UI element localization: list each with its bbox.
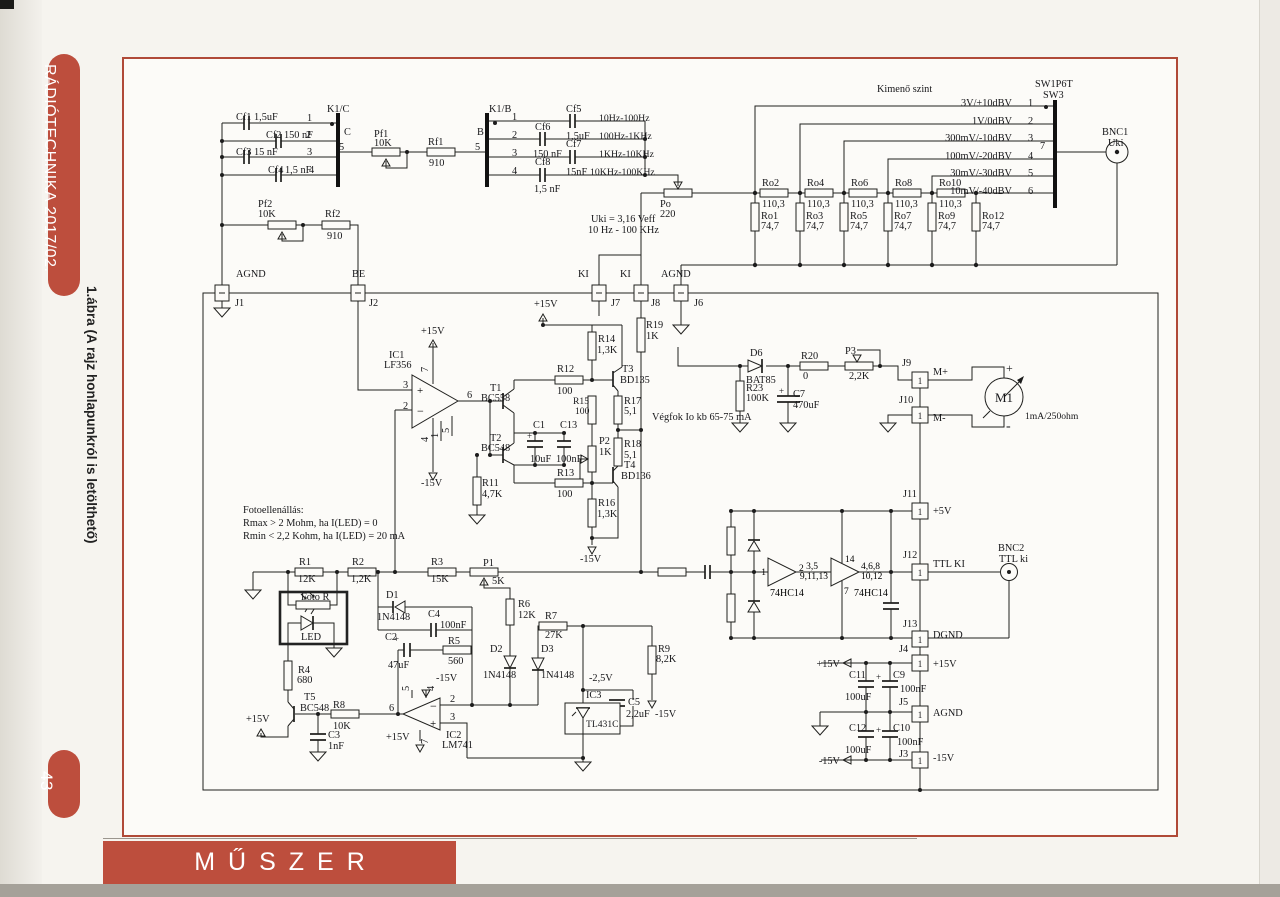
t4-label: T4 xyxy=(624,460,635,471)
section-title: MŰSZER xyxy=(181,848,378,877)
c11-label: C11 xyxy=(849,670,866,681)
pf1-v-label: 10K xyxy=(374,138,392,149)
r13-label: R13 xyxy=(557,468,574,479)
cf2-p-label: 2 xyxy=(306,130,311,141)
ic1-m15-label: -15V xyxy=(421,478,443,489)
cf1-label: Cf1 xyxy=(236,112,251,123)
ro3-v-label: 74,7 xyxy=(806,221,824,232)
d1-v-label: 1N4148 xyxy=(377,612,410,623)
j7-label: J7 xyxy=(611,298,620,309)
c1-label: C1 xyxy=(533,420,545,431)
svg-text:1: 1 xyxy=(761,568,766,578)
cf2-label: Cf2 xyxy=(266,130,281,141)
c11-v-label: 100uF xyxy=(845,692,872,703)
p1-label: P1 xyxy=(483,558,494,569)
switch-k1b-bar xyxy=(485,113,489,187)
c12-label: C12 xyxy=(849,723,866,734)
r6-v-label: 12K xyxy=(518,610,536,621)
lvl2-p-label: 2 xyxy=(1028,116,1033,127)
jsq9-label: 1 xyxy=(918,376,923,386)
ro12-v-label: 74,7 xyxy=(982,221,1000,232)
r13-v-label: 100 xyxy=(557,489,572,500)
d1-label: D1 xyxy=(386,590,399,601)
ic1-p2-label: 2 xyxy=(403,401,408,412)
bnc2-v-label: TTL ki xyxy=(999,554,1028,565)
r11-v-label: 4,7K xyxy=(482,489,503,500)
po-v-label: 220 xyxy=(660,209,675,220)
ic2-p4-label: 4 xyxy=(426,686,437,691)
j10-v-label: M- xyxy=(933,413,946,424)
r12-v-label: 100 xyxy=(557,386,572,397)
cf1-p-label: 1 xyxy=(307,113,312,124)
t5-label: T5 xyxy=(304,692,315,703)
c10-v-label: 100nF xyxy=(897,737,924,748)
rf1-v-label: 910 xyxy=(429,158,444,169)
be-label: BE xyxy=(352,269,365,280)
c5-v-label: 2,2uF xyxy=(626,709,650,720)
fr1-label: 10Hz-100Hz xyxy=(599,113,650,124)
c4-v-label: 100nF xyxy=(440,620,467,631)
r11-label: R11 xyxy=(482,478,499,489)
cf8-label: Cf8 xyxy=(535,157,550,168)
r20-v-label: 0 xyxy=(803,371,808,382)
c3-label: C3 xyxy=(328,730,340,741)
j9-v-label: M+ xyxy=(933,367,948,378)
m1-plus-label: + xyxy=(1006,361,1013,375)
cf4-v-label: 1,5 nF xyxy=(285,165,312,176)
j13-v-label: DGND xyxy=(933,630,963,641)
c5-m15-label: -15V xyxy=(655,709,677,720)
d2-v-label: 1N4148 xyxy=(483,670,516,681)
j8-label: J8 xyxy=(651,298,660,309)
r7-label: R7 xyxy=(545,611,557,622)
svg-text:14: 14 xyxy=(845,555,855,565)
jsq11-label: 1 xyxy=(918,507,923,517)
fr4-label: 10KHz-100KHz xyxy=(590,167,655,178)
lvl1-label: 3V/+10dBV xyxy=(961,98,1013,109)
bnc2-label: BNC2 xyxy=(998,543,1024,554)
lvl3-label: 300mV/-10dBV xyxy=(945,133,1012,144)
c13-v-label: 100nF xyxy=(556,454,583,465)
sw3-label: SW3 xyxy=(1043,90,1064,101)
r18-label: R18 xyxy=(624,439,641,450)
r14-v-label: 1,3K xyxy=(597,345,618,356)
k1b-p1-label: 1 xyxy=(512,112,517,123)
c10-label: C10 xyxy=(893,723,910,734)
r5-label: R5 xyxy=(448,636,460,647)
r6-label: R6 xyxy=(518,599,530,610)
ic1-v-label: LF356 xyxy=(384,360,411,371)
d3-v-label: 1N4148 xyxy=(541,670,574,681)
ic2-p15-label: +15V xyxy=(386,732,410,743)
j5-v-label: AGND xyxy=(933,708,963,719)
c1-p-label: + xyxy=(527,431,532,441)
ic2-p2-label: 2 xyxy=(450,694,455,705)
lvl2-label: 1V/0dBV xyxy=(972,116,1013,127)
t1-v-label: BC558 xyxy=(481,393,510,404)
m15-out-label: -15V xyxy=(580,554,602,565)
r16-label: R16 xyxy=(598,498,615,509)
r8-label: R8 xyxy=(333,700,345,711)
kimeno-szint-label: Kimenő szint xyxy=(877,84,932,95)
r19-label: R19 xyxy=(646,320,663,331)
ic2-p3-label: 3 xyxy=(450,712,455,723)
svg-text:10,12: 10,12 xyxy=(861,572,883,582)
cf3-v-label: 15 nF xyxy=(254,147,278,158)
jsq5-label: 1 xyxy=(918,710,923,720)
c9-label: C9 xyxy=(893,670,905,681)
svg-text:−: − xyxy=(417,404,424,418)
ro8-v-label: 110,3 xyxy=(895,199,918,210)
j11-v-label: +5V xyxy=(933,506,952,517)
led-symbol xyxy=(301,616,313,630)
r1-label: R1 xyxy=(299,557,311,568)
ro6-v-label: 110,3 xyxy=(851,199,874,210)
svg-text:3,5: 3,5 xyxy=(806,562,818,572)
svg-text:−: − xyxy=(430,699,437,713)
fr2-label: 100Hz-1KHz xyxy=(599,131,652,142)
lvl1-p-label: 1 xyxy=(1028,98,1033,109)
p2-label: P2 xyxy=(599,436,610,447)
sw3-p7-label: 7 xyxy=(1040,141,1045,152)
c2-p-label: + xyxy=(394,634,399,644)
k1c-c-label: C xyxy=(344,127,351,138)
cf8-v-label: 15nF xyxy=(566,167,587,178)
ki-j8-label: KI xyxy=(620,269,631,280)
ro2-v-label: 110,3 xyxy=(762,199,785,210)
note3-label: Rmin < 2,2 Kohm, ha I(LED) = 20 mA xyxy=(243,531,406,542)
note2-label: Rmax > 2 Mohm, ha I(LED) = 0 xyxy=(243,518,378,529)
section-banner: MŰSZER xyxy=(103,841,456,884)
j6-label: J6 xyxy=(694,298,703,309)
svg-text:9,11,13: 9,11,13 xyxy=(800,572,828,582)
p15-l-label: +15V xyxy=(816,659,840,670)
k1b-p3-label: 3 xyxy=(512,148,517,159)
cf5-label: Cf5 xyxy=(566,104,581,115)
r3-label: R3 xyxy=(431,557,443,568)
bnc1-label: BNC1 xyxy=(1102,127,1128,138)
amplifier-triangles: + − − + 1 2 3,5 9,11,13 4,6,8 10,12 14 7… xyxy=(403,375,888,730)
k1b-p2-label: 2 xyxy=(512,130,517,141)
ic3-v-label: TL431C xyxy=(586,719,619,730)
switch-sw3-bar xyxy=(1053,100,1057,208)
cf7-label: Cf7 xyxy=(566,139,581,150)
ic1-p1-label: 1 xyxy=(430,433,441,438)
t3-v-label: BD135 xyxy=(620,375,650,386)
m25-label: -2,5V xyxy=(589,673,613,684)
j12-label: J12 xyxy=(903,550,917,561)
jsq13-label: 1 xyxy=(918,635,923,645)
t3-label: T3 xyxy=(622,364,633,375)
r1-v-label: 12K xyxy=(298,574,316,585)
r2-v-label: 1,2K xyxy=(351,574,372,585)
j11-label: J11 xyxy=(903,489,917,500)
c9-v-label: 100nF xyxy=(900,684,927,695)
j5-label: J5 xyxy=(899,697,908,708)
lvl3-p-label: 3 xyxy=(1028,133,1033,144)
ic4-inverter-1 xyxy=(768,558,796,586)
ro6-label: Ro6 xyxy=(851,178,868,189)
lvl6-p-label: 6 xyxy=(1028,186,1033,197)
lvl5-p-label: 5 xyxy=(1028,168,1033,179)
ic2-m15-label: -15V xyxy=(436,673,458,684)
j9-label: J9 xyxy=(902,358,911,369)
footer-rule xyxy=(103,838,917,839)
c7-label: C7 xyxy=(793,389,805,400)
c3-v-label: 1nF xyxy=(328,741,344,752)
led-label: LED xyxy=(301,632,322,643)
ro7-v-label: 74,7 xyxy=(894,221,912,232)
ro5-v-label: 74,7 xyxy=(850,221,868,232)
m1-note-label: 1mA/250ohm xyxy=(1025,411,1079,422)
r17-v-label: 5,1 xyxy=(624,406,637,417)
k1b-p5-label: 5 xyxy=(475,142,480,153)
r7-v-label: 27K xyxy=(545,630,563,641)
ic1-p3-label: 3 xyxy=(403,380,408,391)
sw1p6t-label: SW1P6T xyxy=(1035,79,1073,90)
p15-out-label: +15V xyxy=(534,299,558,310)
j3-label: J3 xyxy=(899,749,908,760)
ro10-label: Ro10 xyxy=(939,178,961,189)
jsq4-label: 1 xyxy=(918,659,923,669)
ic2-v-label: LM741 xyxy=(442,740,473,751)
m15-l-label: -15V xyxy=(819,756,841,767)
jsq10-label: 1 xyxy=(918,411,923,421)
r2-label: R2 xyxy=(352,557,364,568)
r15-v-label: 100 xyxy=(575,406,590,417)
svg-text:4,6,8: 4,6,8 xyxy=(861,562,880,572)
agnd-j6-label: AGND xyxy=(661,269,691,280)
t5-v-label: BC548 xyxy=(300,703,329,714)
svg-text:+: + xyxy=(430,718,436,730)
m1-minus-label: - xyxy=(1006,419,1011,434)
scanned-page: RÁDIÓTECHNIKA 2017/02. 43 1.ábra (A rajz… xyxy=(0,0,1280,897)
p15-t5-label: +15V xyxy=(246,714,270,725)
p3-v-label: 2,2K xyxy=(849,371,870,382)
cf3-label: Cf3 xyxy=(236,147,251,158)
c2-v-label: 47uF xyxy=(388,660,409,671)
c7-v-label: 470uF xyxy=(793,400,820,411)
k1c-p5-label: 5 xyxy=(339,142,344,153)
ic1-p15-label: +15V xyxy=(421,326,445,337)
cf1-v-label: 1,5uF xyxy=(254,112,278,123)
d2-label: D2 xyxy=(490,644,503,655)
diodes xyxy=(301,359,762,670)
cf8-v2-label: 1,5 nF xyxy=(534,184,561,195)
r3-v-label: 15K xyxy=(431,574,449,585)
svg-text:+: + xyxy=(417,385,423,397)
j3-v-label: -15V xyxy=(933,753,955,764)
bnc1-v-label: Uki xyxy=(1108,138,1124,149)
r20-label: R20 xyxy=(801,351,818,362)
svg-text:7: 7 xyxy=(844,587,849,597)
lvl4-p-label: 4 xyxy=(1028,151,1033,162)
r19-v-label: 1K xyxy=(646,331,659,342)
pf2-v-label: 10K xyxy=(258,209,276,220)
r9-v-label: 8,2K xyxy=(656,654,677,665)
r5-v-label: 560 xyxy=(448,656,463,667)
page-bottom-edge xyxy=(0,884,1280,897)
c12-v-label: 100uF xyxy=(845,745,872,756)
cf3-p-label: 3 xyxy=(307,147,312,158)
ro4-v-label: 110,3 xyxy=(807,199,830,210)
t4-v-label: BD136 xyxy=(621,471,651,482)
cf4-label: Cf4 xyxy=(268,165,283,176)
jsq3-label: 1 xyxy=(918,756,923,766)
r14-label: R14 xyxy=(598,334,615,345)
c1-v-label: 10uF xyxy=(530,454,551,465)
rf2-label: Rf2 xyxy=(325,209,340,220)
cf4-p-label: 4 xyxy=(309,165,314,176)
ic1-p5-label: 5 xyxy=(441,428,452,433)
m1-label: M1 xyxy=(995,390,1013,405)
ic1-p7-label: 7 xyxy=(420,367,431,372)
p3-label: P3 xyxy=(845,346,856,357)
ic2-p7-label: 7 xyxy=(420,739,431,744)
ro8-label: Ro8 xyxy=(895,178,912,189)
k1b-p4-label: 4 xyxy=(512,166,517,177)
r4-v-label: 680 xyxy=(297,675,312,686)
c11-p-label: + xyxy=(876,672,881,682)
foto-r-label: Foto R xyxy=(301,592,329,603)
t2-v-label: BC548 xyxy=(481,443,510,454)
ic2-p5-label: 5 xyxy=(401,686,412,691)
ic3-label: IC3 xyxy=(586,690,601,701)
c5-label: C5 xyxy=(628,697,640,708)
c12-p-label: + xyxy=(876,725,881,735)
ic1-opamp xyxy=(412,375,458,428)
svg-text:74HC14: 74HC14 xyxy=(770,588,804,599)
p1-v-label: 5K xyxy=(492,576,505,587)
j13-label: J13 xyxy=(903,619,917,630)
p2-v-label: 1K xyxy=(599,447,612,458)
note1-label: Fotoellenállás: xyxy=(243,505,304,516)
ro4-label: Ro4 xyxy=(807,178,824,189)
cf6-label: Cf6 xyxy=(535,122,550,133)
j2-label: J2 xyxy=(369,298,378,309)
j1-label: J1 xyxy=(235,298,244,309)
c13-label: C13 xyxy=(560,420,577,431)
j4-label: J4 xyxy=(899,644,908,655)
ro2-label: Ro2 xyxy=(762,178,779,189)
k1b-b-label: B xyxy=(477,127,484,138)
k1b-label: K1/B xyxy=(489,104,511,115)
d3-label: D3 xyxy=(541,644,554,655)
r12-label: R12 xyxy=(557,364,574,375)
jsq12-label: 1 xyxy=(918,568,923,578)
r23-v-label: 100K xyxy=(746,393,769,404)
lvl4-label: 100mV/-20dBV xyxy=(945,151,1012,162)
rf2-v-label: 910 xyxy=(327,231,342,242)
c4-label: C4 xyxy=(428,609,440,620)
d6-label: D6 xyxy=(750,348,763,359)
fr3-label: 1KHz-10KHz xyxy=(599,149,655,160)
ic1-p6-label: 6 xyxy=(467,390,472,401)
j4-v-label: +15V xyxy=(933,659,957,670)
j12-v-label: TTL KI xyxy=(933,559,965,570)
circuit-schematic: + − − + 1 2 3,5 9,11,13 4,6,8 10,12 14 7… xyxy=(0,0,1280,897)
uki-note2-label: 10 Hz - 100 KHz xyxy=(588,225,659,236)
j10-label: J10 xyxy=(899,395,913,406)
agnd-j1-label: AGND xyxy=(236,269,266,280)
ro10-v-label: 110,3 xyxy=(939,199,962,210)
ki-j7-label: KI xyxy=(578,269,589,280)
ic2-p6-label: 6 xyxy=(389,703,394,714)
k1c-label: K1/C xyxy=(327,104,349,115)
rf1-label: Rf1 xyxy=(428,137,443,148)
uki-note1-label: Uki = 3,16 Veff xyxy=(591,214,656,225)
r16-v-label: 1,3K xyxy=(597,509,618,520)
c7-p-label: + xyxy=(779,386,784,396)
vegfok-note-label: Végfok Io kb 65-75 mA xyxy=(652,412,752,423)
ro1-v-label: 74,7 xyxy=(761,221,779,232)
ro9-v-label: 74,7 xyxy=(938,221,956,232)
svg-text:74HC14: 74HC14 xyxy=(854,588,888,599)
